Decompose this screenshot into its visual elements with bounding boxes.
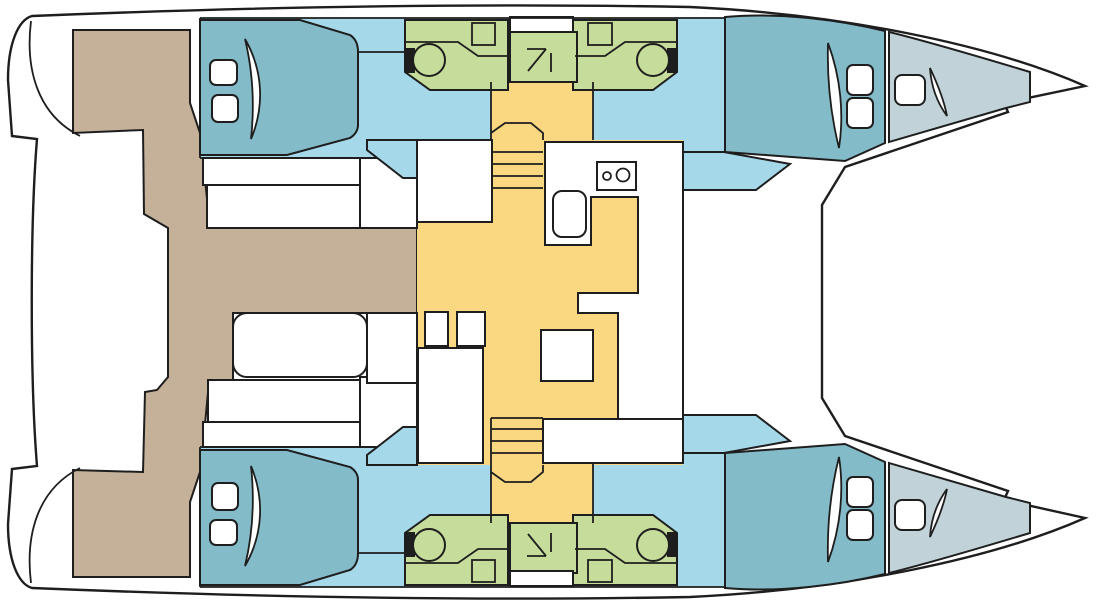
toilet-icon-starboard-left bbox=[413, 529, 445, 561]
hatch-icon-forepeak bbox=[895, 75, 925, 105]
cockpit-bench-starboard bbox=[208, 380, 360, 422]
stove-burner-large-icon bbox=[617, 169, 630, 182]
sink-icon-port-left bbox=[472, 23, 495, 45]
sink-icon-starboard-left bbox=[472, 560, 495, 582]
hatch-icon bbox=[847, 98, 873, 128]
hatch-icon bbox=[847, 477, 873, 507]
cockpit-table bbox=[233, 313, 367, 377]
starboard-deck-hatch bbox=[510, 571, 573, 586]
toilet-icon-starboard-right bbox=[637, 529, 669, 561]
salon-table bbox=[541, 330, 593, 381]
sink-icon-starboard-right bbox=[588, 560, 612, 582]
cockpit-side-seat bbox=[367, 313, 417, 383]
starboard-aft-cabin-bed bbox=[200, 450, 358, 585]
galley-aft-counter bbox=[543, 419, 683, 463]
catamaran-deck-plan bbox=[0, 0, 1098, 605]
hatch-icon bbox=[210, 60, 237, 85]
toilet-icon-port-right bbox=[637, 44, 669, 76]
hatch-icon bbox=[847, 510, 873, 540]
galley-sink-icon bbox=[553, 191, 586, 237]
sink-icon-port-right bbox=[588, 23, 612, 45]
toilet-icon-port-left bbox=[413, 44, 445, 76]
stove-burner-small-icon bbox=[603, 172, 611, 180]
port-aft-cabin-bed bbox=[200, 20, 358, 155]
salon-stool-right bbox=[457, 312, 485, 346]
starboard-shower bbox=[510, 523, 577, 573]
nav-station bbox=[417, 140, 492, 222]
hatch-icon bbox=[847, 65, 873, 95]
cockpit-bench-port bbox=[207, 185, 360, 228]
hatch-icon bbox=[210, 520, 237, 545]
hatch-icon bbox=[212, 483, 238, 510]
salon-sofa bbox=[418, 348, 483, 463]
salon-stool-left bbox=[425, 312, 448, 346]
cockpit-bench-port-row bbox=[203, 158, 360, 185]
hatch-icon bbox=[212, 95, 238, 122]
hatch-icon-forepeak bbox=[895, 500, 925, 530]
port-shower bbox=[510, 32, 577, 82]
cockpit-bench-starboard-row bbox=[203, 422, 360, 447]
deck-plan-svg bbox=[0, 0, 1098, 605]
port-deck-hatch bbox=[510, 17, 573, 32]
